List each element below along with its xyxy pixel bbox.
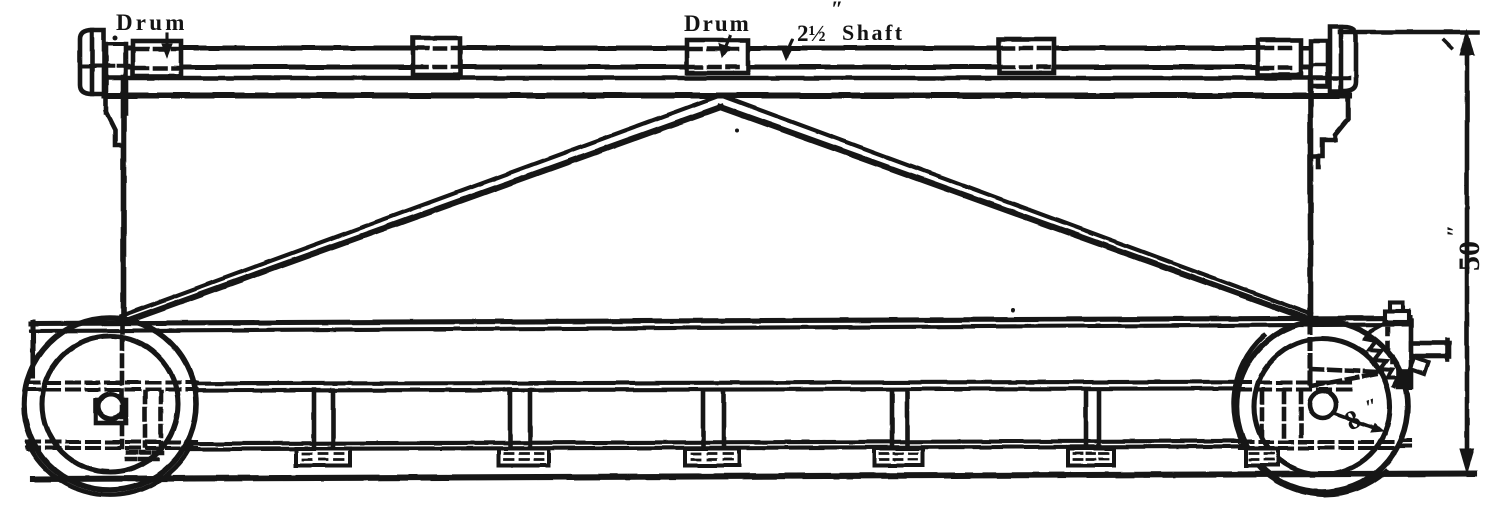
- svg-text:″: ″: [831, 0, 843, 21]
- svg-text:50: 50: [1453, 241, 1486, 271]
- svg-text:Drum: Drum: [684, 11, 751, 36]
- svg-text:Shaft: Shaft: [842, 20, 905, 45]
- svg-text:Drum: Drum: [116, 10, 188, 35]
- svg-text:2½: 2½: [797, 21, 826, 46]
- svg-text:″: ″: [1442, 225, 1467, 237]
